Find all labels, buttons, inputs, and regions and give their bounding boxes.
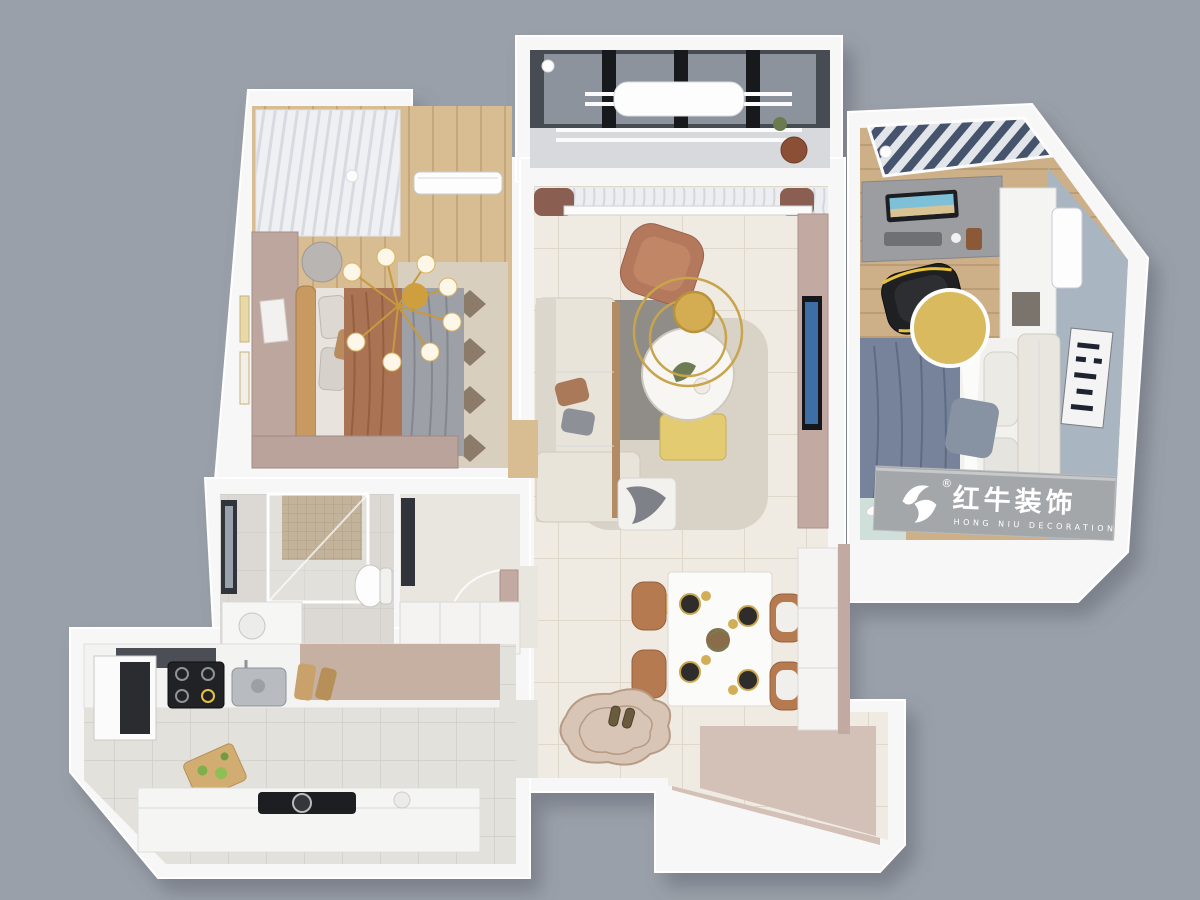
gold-bench <box>660 414 726 460</box>
wardrobe <box>252 436 458 468</box>
wall-frame <box>240 352 249 404</box>
room-bathroom <box>220 494 394 650</box>
entry-rug <box>560 689 670 764</box>
air-conditioner-2 <box>1052 208 1082 288</box>
air-conditioner <box>414 172 502 194</box>
room-hallway <box>400 494 520 654</box>
throw-ottoman <box>618 478 676 530</box>
vanity-mirror <box>260 299 288 343</box>
brand-name: 红牛装饰 <box>952 482 1077 519</box>
vanity-desk <box>252 232 298 458</box>
basin <box>239 613 265 639</box>
desk-mouse <box>951 233 961 243</box>
chandelier-disc <box>674 292 714 332</box>
tv <box>802 296 822 430</box>
room-master-bedroom <box>240 106 512 468</box>
door-opening-master <box>508 420 538 478</box>
room-kitchen <box>84 644 516 864</box>
chair-cushion <box>776 670 798 700</box>
plate-stack <box>394 792 410 808</box>
laundry-cover <box>614 82 744 116</box>
fridge <box>94 656 156 740</box>
tv-screen <box>805 302 818 424</box>
vanity-stool <box>302 242 342 282</box>
chandelier-hub <box>402 283 428 309</box>
sideboard <box>798 548 838 730</box>
gas-stove <box>168 662 224 708</box>
curtain-rail <box>564 206 812 215</box>
floorplan-render: ® 红牛装饰 HONG NIU DECORATION <box>0 0 1200 900</box>
kitchen-island <box>138 788 480 852</box>
chair-cushion <box>776 602 798 632</box>
sideboard-wall <box>838 544 850 734</box>
brand-sign: ® 红牛装饰 HONG NIU DECORATION <box>873 466 1119 541</box>
gold-round-table <box>912 290 988 366</box>
balcony-plant <box>773 117 787 131</box>
desk <box>862 176 1002 262</box>
master-bed <box>296 286 464 458</box>
wardrobe-niche <box>1012 292 1040 326</box>
pot <box>293 794 311 812</box>
bathroom-window-pane <box>225 506 233 588</box>
bed2-pillow-gray <box>944 396 1001 459</box>
registered-mark: ® <box>941 477 953 490</box>
wall-frame <box>240 296 249 342</box>
toilet <box>355 565 392 607</box>
window-seat <box>256 110 400 236</box>
room-laundry-balcony <box>530 50 830 168</box>
desk-pad-brown <box>966 228 982 250</box>
bed-headboard <box>296 286 316 458</box>
hall-window <box>401 498 415 586</box>
desk-mat <box>884 232 942 246</box>
balcony-chair <box>781 137 807 163</box>
